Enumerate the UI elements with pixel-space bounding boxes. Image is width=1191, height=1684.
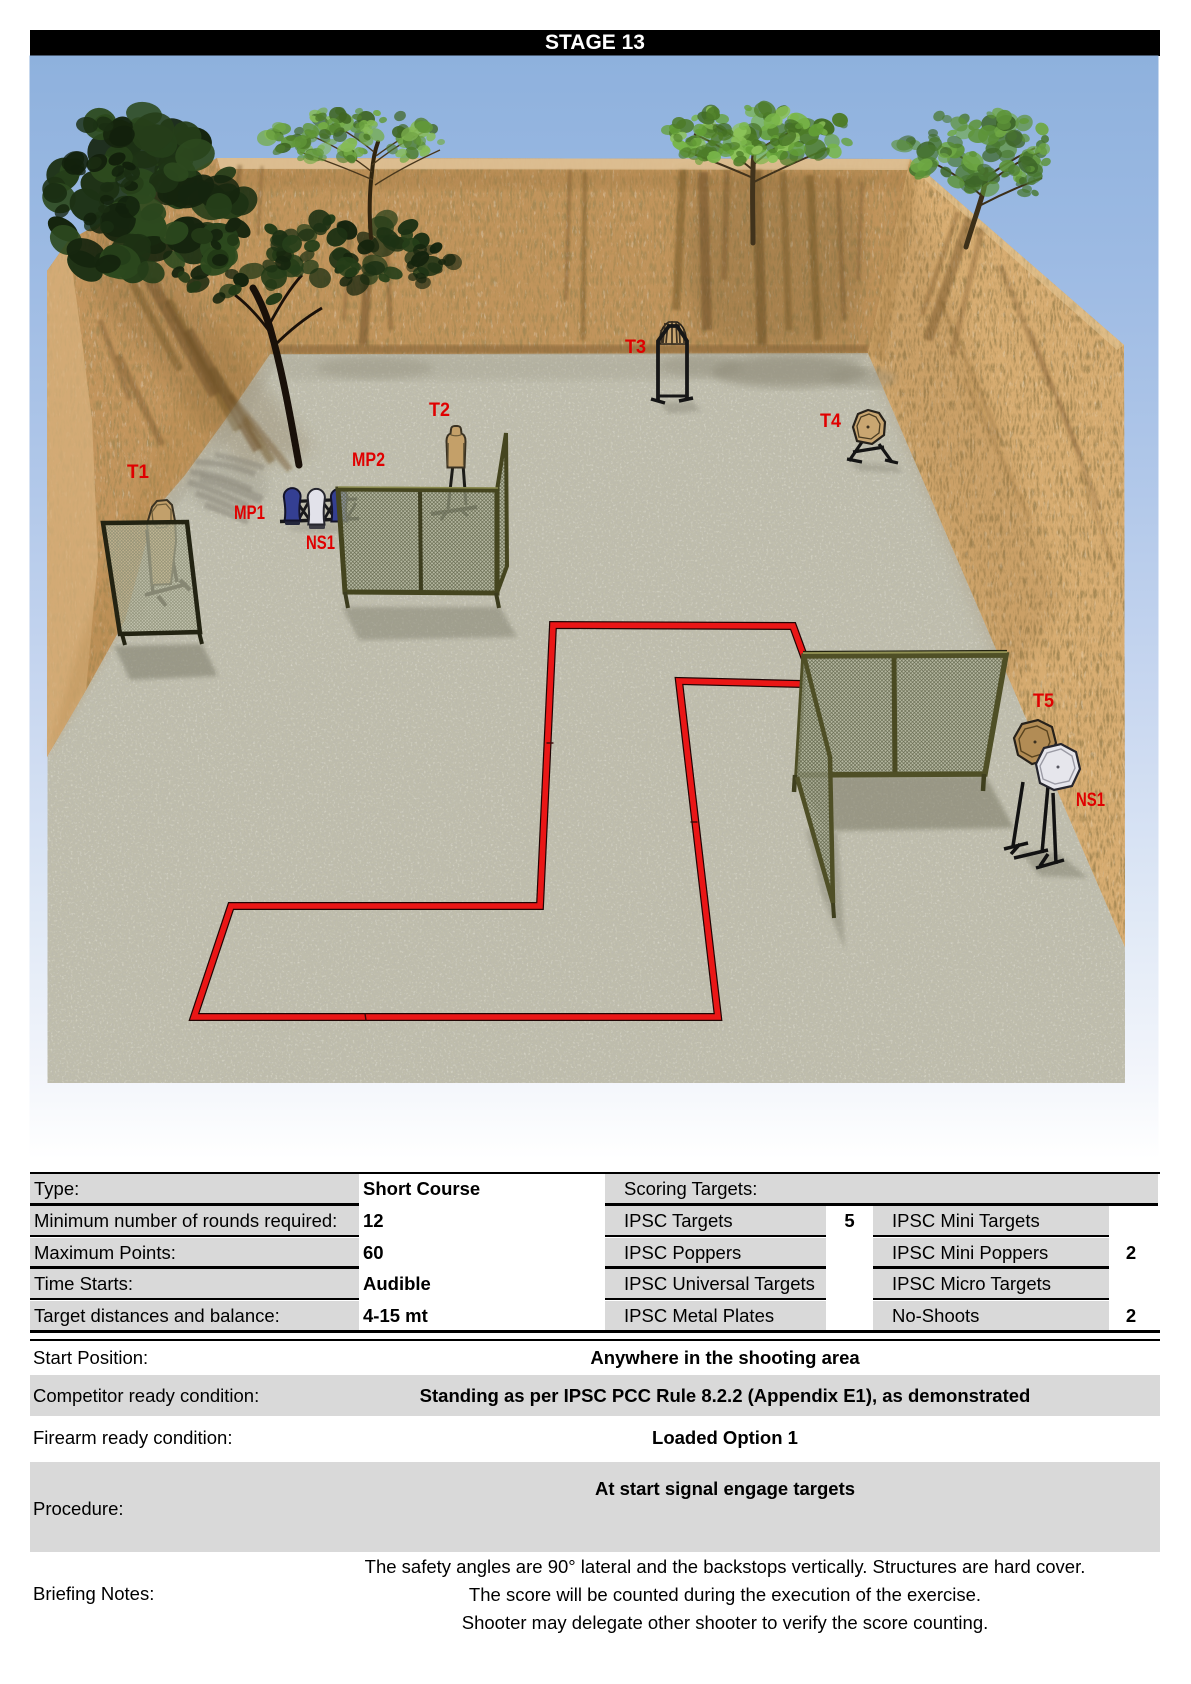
svg-text:T1: T1 xyxy=(127,462,149,483)
svg-text:NS1: NS1 xyxy=(306,533,335,554)
svg-text:NS1: NS1 xyxy=(1076,790,1105,811)
svg-text:MP2: MP2 xyxy=(352,450,385,471)
svg-text:T5: T5 xyxy=(1033,691,1054,712)
svg-text:T4: T4 xyxy=(820,411,841,432)
svg-text:T3: T3 xyxy=(625,337,646,358)
svg-text:T2: T2 xyxy=(429,400,450,421)
svg-text:MP1: MP1 xyxy=(234,503,265,524)
